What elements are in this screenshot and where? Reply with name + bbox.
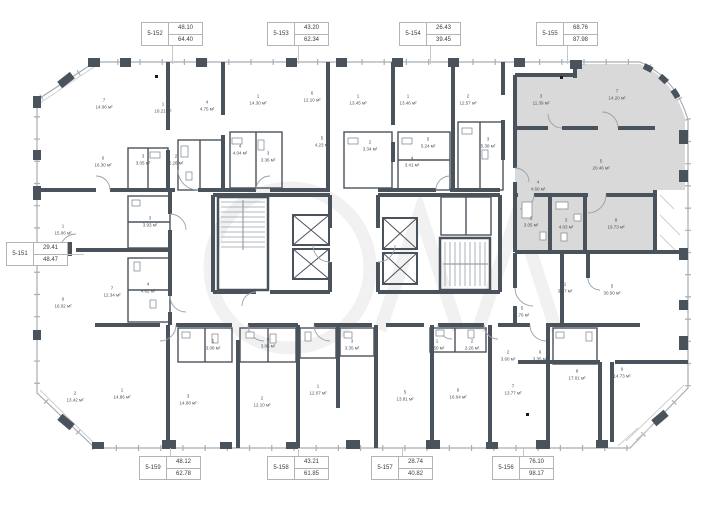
room-label: 616.30 м² [94,155,111,169]
unit-area-total: 62.34 [295,35,328,46]
unit-label-5-156[interactable]: 5-15676.1098.17 [492,456,554,480]
room-label: 23.05 м² [524,215,539,229]
room-number: 6 [94,155,111,162]
room-label: 118.21 м² [154,101,171,115]
room-number: 3 [179,393,196,400]
room-label: 520.46 м² [592,158,609,172]
room-number: 2 [524,215,539,222]
leader-line [170,448,171,456]
unit-areas: 48.1064.40 [169,23,202,45]
room-label: 44.75 м² [200,99,215,113]
leader-line [68,254,84,255]
unit-areas: 29.4148.47 [34,243,67,265]
room-number: 1 [399,93,416,100]
unit-id: 5-154 [400,23,427,45]
unit-area-living: 43.20 [295,23,328,35]
unit-area-total: 87.98 [564,35,597,46]
room-area: 14.73 м² [613,373,630,380]
room-label: 714.06 м² [95,97,112,111]
room-area: 3.86 м² [261,343,276,350]
room-label: 914.73 м² [613,366,630,380]
room-label: 713.77 м² [504,383,521,397]
unit-id: 5-155 [537,23,564,45]
room-label: 23.60 м² [501,349,516,363]
room-label: 819.73 м² [607,217,624,231]
room-area: 30.50 м² [603,290,620,297]
room-number: 6 [533,349,548,356]
room-area: 2.50 м² [430,345,445,352]
room-number: 2 [363,139,378,146]
room-number: 7 [95,97,112,104]
room-number: 7 [608,88,625,95]
unit-area-total: 62.78 [167,469,200,480]
room-label: 55.24 м² [421,136,436,150]
room-area: 12.07 м² [309,390,326,397]
room-area: 16.02 м² [54,303,71,310]
room-number: 3 [481,136,496,143]
room-area: 5.24 м² [421,143,436,150]
room-label: 12.50 м² [430,338,445,352]
leader-line [402,448,403,456]
room-area: 3.97 м² [558,288,573,295]
room-number: 4 [531,179,546,186]
room-area: 4.62 м² [141,288,156,295]
room-area: 14.08 м² [179,400,196,407]
room-label: 35.38 м² [481,136,496,150]
room-area: 14.86 м² [113,394,130,401]
room-label: 114.30 м² [249,93,266,107]
room-label: 33.35 м² [345,338,360,352]
leader-line [567,46,568,64]
room-number: 5 [396,389,413,396]
unit-id: 5-158 [268,457,295,479]
room-area: 5.38 м² [481,143,496,150]
unit-id: 5-159 [140,457,167,479]
unit-label-5-151[interactable]: 5-15129.4148.47 [6,242,68,266]
unit-label-5-152[interactable]: 5-15248.1064.40 [141,22,203,46]
room-area: 19.73 м² [607,224,624,231]
room-number: 4 [200,99,215,106]
room-area: 15.06 м² [54,230,71,237]
room-label: 22.26 м² [465,338,480,352]
room-number: 9 [613,366,630,373]
room-number: 6 [54,296,71,303]
room-label: 714.20 м² [608,88,625,102]
leader-line [298,448,299,456]
room-area: 2.26 м² [465,345,480,352]
room-label: 311.39 м² [533,93,550,107]
room-label: 530.50 м² [603,283,620,297]
room-label: 44.60 м² [531,179,546,193]
room-number: 1 [249,93,266,100]
room-area: 3.41 м² [405,162,420,169]
room-area: 3.05 м² [136,160,151,167]
room-area: 13.45 м² [349,100,366,107]
unit-areas: 28.7440.82 [399,457,432,479]
unit-area-living: 29.41 [34,243,67,255]
leader-line [298,46,299,64]
room-number: 2 [459,93,476,100]
room-label: 817.01 м² [568,368,585,382]
unit-id: 5-156 [493,457,520,479]
room-area: 16.30 м² [94,162,111,169]
room-label: 712.34 м² [103,285,120,299]
room-area: 13.42 м² [66,397,83,404]
room-label: 612.10 м² [303,90,320,104]
room-label: 212.57 м² [459,93,476,107]
room-number: 2 [66,390,83,397]
room-number: 8 [607,217,624,224]
room-number: 3 [261,150,276,157]
unit-area-total: 39.45 [427,35,460,46]
unit-area-total: 98.17 [520,469,553,480]
room-area: 3.05 м² [524,222,539,229]
room-label: 44.62 м² [141,281,156,295]
leader-line [172,46,173,64]
unit-id: 5-152 [142,23,169,45]
room-label: 55.76 м² [515,305,530,319]
room-area: 3.35 м² [533,356,548,363]
room-label: 23.34 м² [363,139,378,153]
room-label: 113.45 м² [349,93,366,107]
room-label: 33.05 м² [136,153,151,167]
room-area: 17.01 м² [568,375,585,382]
room-area: 14.06 м² [95,104,112,111]
room-area: 12.10 м² [303,97,320,104]
unit-area-total: 40.82 [399,469,432,480]
room-number: 1 [349,93,366,100]
room-number: 5 [515,305,530,312]
room-number: 1 [558,281,573,288]
room-area: 13.81 м² [396,396,413,403]
unit-id: 5-151 [7,243,34,265]
room-number: 1 [113,387,130,394]
room-label: 212.10 м² [253,395,270,409]
room-number: 1 [154,101,171,108]
unit-label-5-157[interactable]: 5-15728.7440.82 [371,456,433,480]
room-label: 616.04 м² [449,387,466,401]
room-label: 63.35 м² [533,349,548,363]
room-area: 12.57 м² [459,100,476,107]
room-number: 5 [421,136,436,143]
room-number: 4 [233,143,248,150]
room-area: 5.76 м² [515,312,530,319]
room-label: 54.23 м² [315,135,330,149]
room-label: 115.06 м² [54,223,71,237]
room-area: 3.36 м² [261,157,276,164]
unit-area-living: 68.76 [564,23,597,35]
room-area: 16.04 м² [449,394,466,401]
unit-area-living: 43.21 [295,457,328,469]
room-label: 33.36 м² [261,150,276,164]
room-number: 2 [253,395,270,402]
labels-layer: 5-15248.1064.405-15343.2062.345-15426.43… [0,0,720,509]
unit-areas: 43.2161.85 [295,457,328,479]
room-area: 2.28 м² [169,160,184,167]
room-number: 4 [261,336,276,343]
room-area: 4.75 м² [200,106,215,113]
room-label: 13.97 м² [558,281,573,295]
room-number: 3 [533,93,550,100]
room-area: 11.39 м² [533,100,550,107]
room-area: 3.60 м² [501,356,516,363]
room-area: 12.34 м² [103,292,120,299]
room-number: 3 [345,338,360,345]
room-number: 1 [54,223,71,230]
unit-areas: 68.7687.98 [564,23,597,45]
unit-label-5-153[interactable]: 5-15343.2062.34 [267,22,329,46]
room-number: 5 [592,158,609,165]
room-area: 4.04 м² [233,150,248,157]
floor-plan-page: 5-15248.1064.405-15343.2062.345-15426.43… [0,0,720,509]
room-area: 14.20 м² [608,95,625,102]
room-number: 3 [559,217,574,224]
unit-areas: 26.4339.45 [427,23,460,45]
room-number: 6 [449,387,466,394]
room-area: 3.93 м² [143,222,158,229]
room-label: 513.81 м² [396,389,413,403]
room-number: 1 [309,383,326,390]
room-label: 616.02 м² [54,296,71,310]
unit-areas: 43.2062.34 [295,23,328,45]
room-label: 112.07 м² [309,383,326,397]
unit-areas: 48.1262.78 [167,457,200,479]
room-area: 3.35 м² [345,345,360,352]
room-area: 4.23 м² [315,142,330,149]
room-number: 8 [568,368,585,375]
room-number: 1 [430,338,445,345]
unit-area-living: 48.12 [167,457,200,469]
room-area: 3.34 м² [363,146,378,153]
leader-line [523,448,524,456]
unit-area-total: 61.85 [295,469,328,480]
leader-line [430,46,431,64]
room-number: 5 [206,338,221,345]
room-number: 4 [405,155,420,162]
room-number: 5 [315,135,330,142]
unit-area-living: 28.74 [399,457,432,469]
room-number: 4 [141,281,156,288]
room-number: 3 [136,153,151,160]
room-number: 6 [303,90,320,97]
unit-area-living: 26.43 [427,23,460,35]
room-label: 43.41 м² [405,155,420,169]
room-area: 14.30 м² [249,100,266,107]
unit-label-5-154[interactable]: 5-15426.4339.45 [399,22,461,46]
room-number: 5 [603,283,620,290]
room-label: 33.93 м² [143,215,158,229]
unit-id: 5-153 [268,23,295,45]
unit-area-living: 76.10 [520,457,553,469]
room-label: 34.03 м² [559,217,574,231]
room-label: 53.08 м² [206,338,221,352]
unit-label-5-155[interactable]: 5-15568.7687.98 [536,22,598,46]
room-area: 20.46 м² [592,165,609,172]
unit-label-5-159[interactable]: 5-15948.1262.78 [139,456,201,480]
room-label: 213.42 м² [66,390,83,404]
room-label: 43.86 м² [261,336,276,350]
room-area: 12.10 м² [253,402,270,409]
room-number: 7 [504,383,521,390]
unit-area-living: 48.10 [169,23,202,35]
unit-id: 5-157 [372,457,399,479]
room-label: 113.46 м² [399,93,416,107]
room-area: 4.60 м² [531,186,546,193]
room-number: 2 [465,338,480,345]
unit-area-total: 48.47 [34,255,67,266]
room-area: 18.21 м² [154,108,171,115]
room-label: 22.28 м² [169,153,184,167]
unit-label-5-158[interactable]: 5-15843.2161.85 [267,456,329,480]
room-number: 3 [143,215,158,222]
room-area: 13.77 м² [504,390,521,397]
room-area: 3.08 м² [206,345,221,352]
room-label: 44.04 м² [233,143,248,157]
unit-area-total: 64.40 [169,35,202,46]
unit-areas: 76.1098.17 [520,457,553,479]
room-number: 2 [169,153,184,160]
room-label: 314.08 м² [179,393,196,407]
room-label: 114.86 м² [113,387,130,401]
room-area: 13.46 м² [399,100,416,107]
room-number: 2 [501,349,516,356]
room-number: 7 [103,285,120,292]
room-area: 4.03 м² [559,224,574,231]
